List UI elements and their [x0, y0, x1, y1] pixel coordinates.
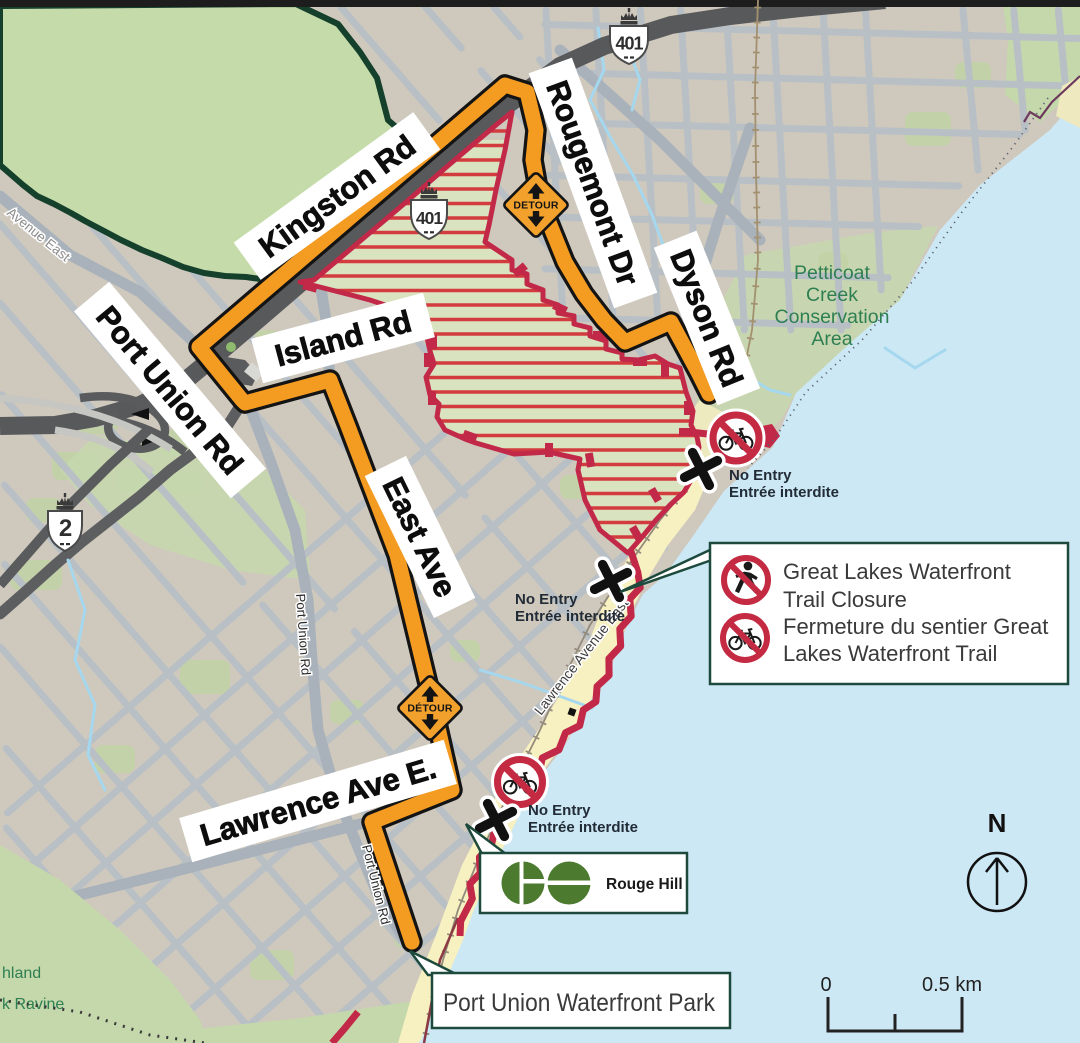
svg-text:401: 401	[416, 208, 443, 228]
svg-text:Port Union Waterfront Park: Port Union Waterfront Park	[443, 989, 715, 1017]
svg-text:Great Lakes Waterfront: Great Lakes Waterfront	[783, 559, 1011, 584]
svg-text:Fermeture du sentier Great: Fermeture du sentier Great	[783, 614, 1048, 639]
svg-text:Entrée interdite: Entrée interdite	[729, 484, 839, 501]
svg-text:No Entry: No Entry	[528, 802, 591, 819]
svg-text:401: 401	[615, 34, 643, 54]
svg-text:N: N	[988, 808, 1007, 838]
svg-text:Lakes Waterfront Trail: Lakes Waterfront Trail	[783, 641, 997, 666]
svg-text:Entrée interdite: Entrée interdite	[528, 819, 638, 836]
svg-text:DÉTOUR: DÉTOUR	[407, 702, 453, 715]
svg-text:0: 0	[820, 974, 831, 996]
svg-text:Trail Closure: Trail Closure	[783, 587, 907, 612]
svg-text:No Entry: No Entry	[729, 467, 792, 484]
svg-text:Entrée interdite: Entrée interdite	[515, 608, 625, 625]
svg-text:No Entry: No Entry	[515, 591, 578, 608]
svg-text:DETOUR: DETOUR	[513, 200, 559, 212]
svg-text:0.5 km: 0.5 km	[922, 974, 982, 996]
svg-text:Rouge Hill: Rouge Hill	[606, 876, 683, 893]
svg-text:2: 2	[59, 515, 72, 542]
